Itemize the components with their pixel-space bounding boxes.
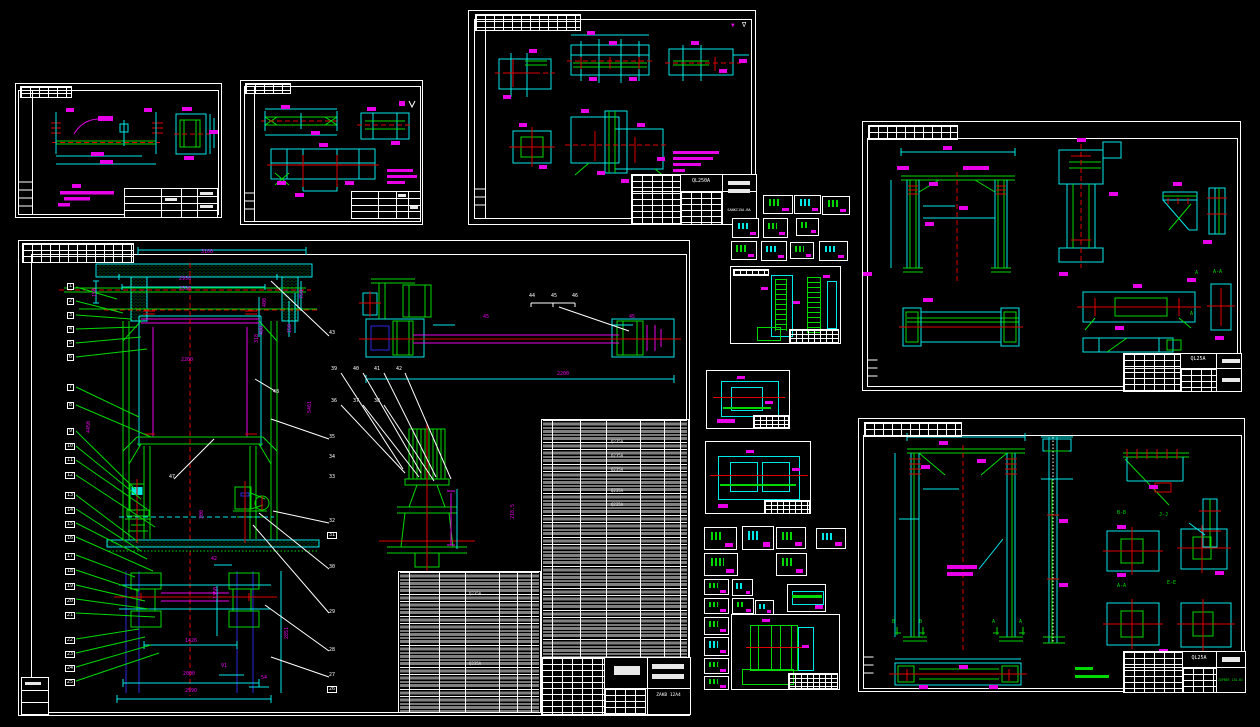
detail-tile[interactable]	[704, 676, 729, 690]
detail-tile[interactable]	[704, 598, 729, 614]
detail-tile[interactable]	[763, 195, 793, 214]
sheet-header-table	[868, 125, 958, 140]
detail-tile[interactable]	[732, 218, 759, 238]
sheet-beam-detail[interactable]	[15, 83, 222, 218]
detail-tile[interactable]	[794, 195, 821, 214]
sheet-main-assembly[interactable]: ZAKB 12A4 123456789101112131415161718192…	[18, 240, 690, 716]
detail-tile[interactable]	[790, 242, 814, 259]
detail-tile[interactable]	[776, 553, 807, 576]
drawing-number: ZAPB03 12A-B1	[1216, 679, 1245, 683]
drawing-code: QL250A	[680, 179, 722, 185]
bearing-seat-detail-block[interactable]	[705, 441, 811, 514]
sheet-header-table	[245, 83, 291, 94]
detail-tile[interactable]	[755, 600, 774, 615]
title-block: QL25A	[1123, 353, 1242, 392]
drawing-code: QL25A	[1182, 656, 1216, 662]
detail-tile[interactable]	[761, 241, 787, 261]
detail-tile[interactable]	[742, 526, 774, 550]
frame-detail-block[interactable]	[731, 614, 840, 690]
sheet-support-frame[interactable]: B-BJ-JA-AE-EBBAA QL25A ZAPB03 12A-B1	[858, 418, 1245, 692]
pedestal-detail-block[interactable]	[706, 370, 790, 429]
sheet-beam-detail-2[interactable]	[240, 80, 423, 225]
detail-tile[interactable]	[822, 196, 850, 215]
sheet-assembly-top[interactable]: ▼∇ QL250A SANKI15A-BA	[468, 10, 756, 225]
frame-parts-linework	[863, 122, 1242, 392]
title-block: QL25A ZAPB03 12A-B1	[1123, 651, 1246, 693]
detail-tile[interactable]	[732, 598, 754, 614]
detail-tile[interactable]	[796, 218, 819, 236]
detail-tile[interactable]	[731, 241, 757, 260]
detail-tile[interactable]	[704, 527, 737, 550]
detail-tile[interactable]	[819, 241, 848, 261]
detail-tile[interactable]	[776, 527, 806, 549]
detail-tile[interactable]	[704, 553, 738, 576]
drawing-code: QL25A	[1180, 357, 1216, 363]
beam-detail-tile[interactable]	[787, 584, 826, 612]
detail-tile[interactable]	[816, 528, 846, 549]
bom-table-left	[398, 571, 541, 713]
drawing-number: SANKI15A-BA	[722, 209, 756, 213]
sheet-frame-parts[interactable]: A-AAA QL25A	[862, 121, 1241, 391]
sheet-header-table	[20, 86, 72, 98]
title-block	[124, 188, 218, 218]
cad-canvas: ▼∇ QL250A SANKI15A-BA	[0, 0, 1260, 727]
detail-tile[interactable]	[704, 579, 729, 595]
detail-tile[interactable]	[763, 218, 788, 238]
guide-rail-detail-block[interactable]	[730, 266, 841, 344]
title-block	[351, 191, 421, 219]
title-block: ZAKB 12A4	[541, 657, 691, 715]
sheet-header-table	[22, 243, 134, 263]
sheet-header-table	[864, 422, 962, 437]
drawing-number: ZAKB 12A4	[647, 694, 690, 699]
revision-block	[21, 677, 49, 715]
sheet-header-table	[475, 14, 581, 31]
detail-tile[interactable]	[732, 579, 753, 596]
detail-tile[interactable]	[704, 658, 729, 674]
detail-tile[interactable]	[704, 617, 729, 635]
detail-tile[interactable]	[704, 637, 729, 656]
